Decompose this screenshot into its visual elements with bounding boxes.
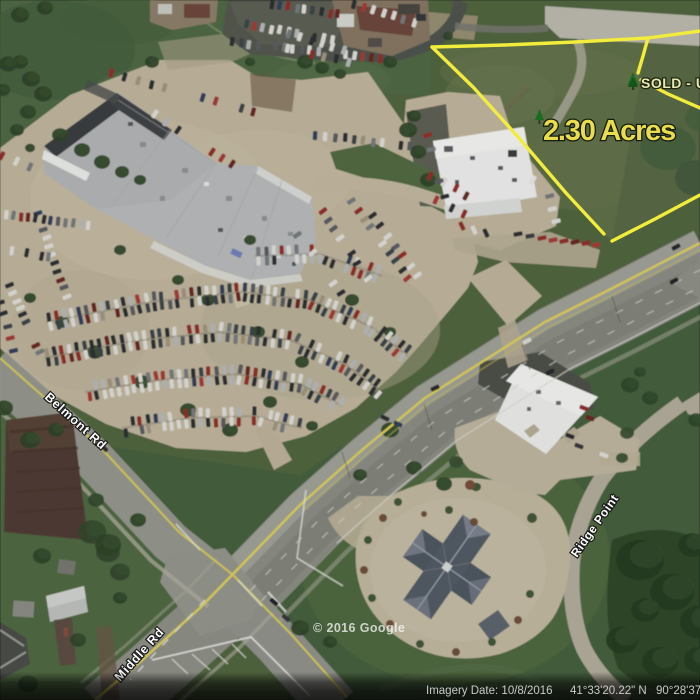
svg-text:Imagery Date: 10/8/2016: Imagery Date: 10/8/2016 <box>426 685 553 697</box>
svg-text:© 2016 Google: © 2016 Google <box>313 621 405 635</box>
svg-text:41°33'20.22" N: 41°33'20.22" N <box>570 685 647 697</box>
svg-text:90°28'37" W: 90°28'37" W <box>656 685 700 697</box>
svg-text:SOLD - UN: SOLD - UN <box>641 75 700 91</box>
svg-text:2.30 Acres: 2.30 Acres <box>543 115 675 147</box>
